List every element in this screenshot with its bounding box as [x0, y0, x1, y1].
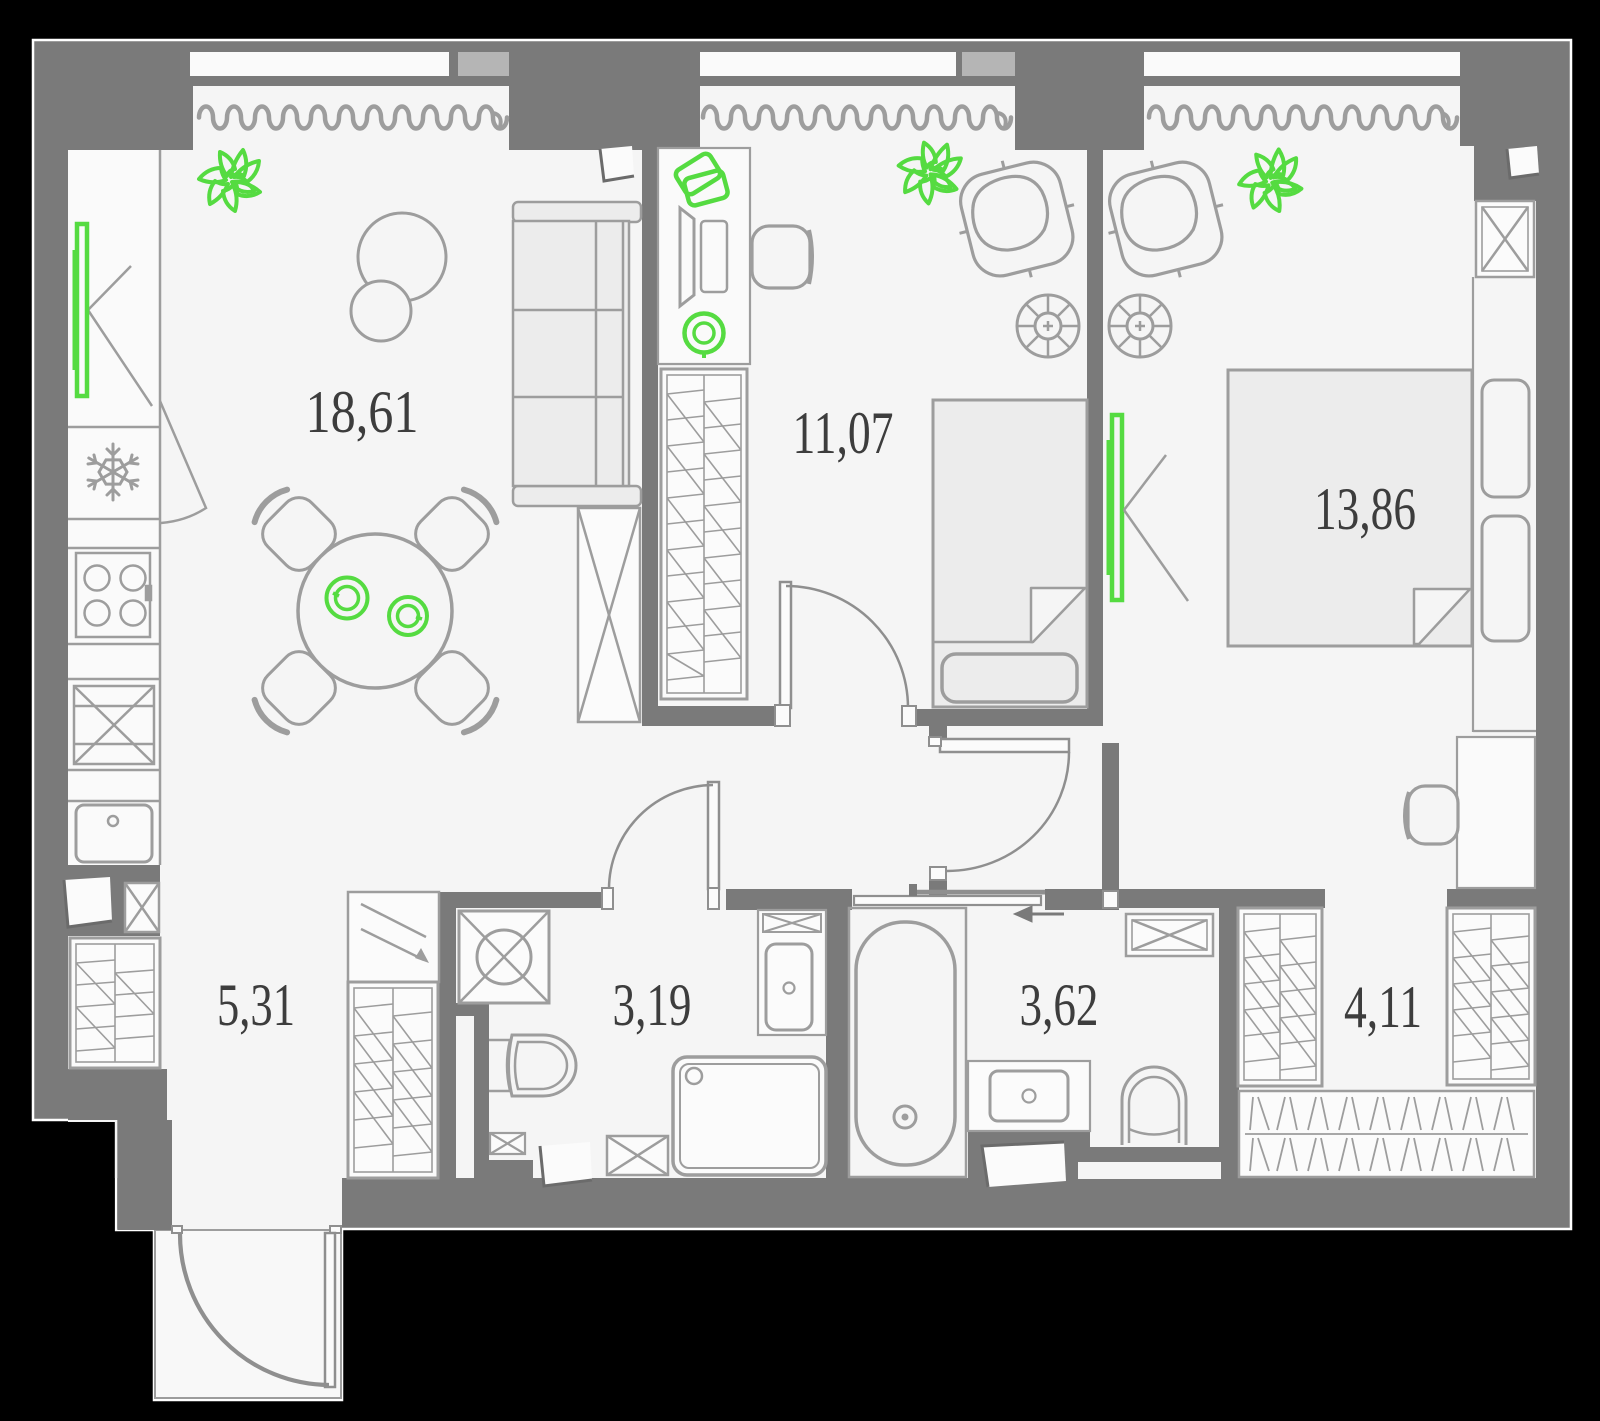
svg-text:18,61: 18,61	[306, 379, 419, 445]
svg-text:11,07: 11,07	[793, 400, 894, 466]
svg-text:5,31: 5,31	[217, 972, 295, 1038]
svg-text:3,62: 3,62	[1020, 972, 1099, 1038]
svg-text:4,11: 4,11	[1344, 974, 1422, 1040]
svg-text:3,19: 3,19	[613, 972, 692, 1038]
svg-text:13,86: 13,86	[1314, 476, 1416, 542]
